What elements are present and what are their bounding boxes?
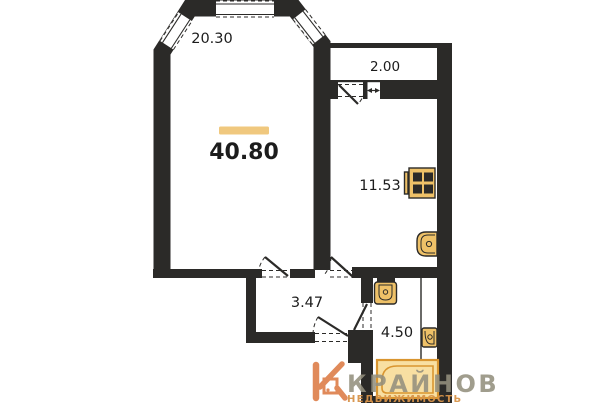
bath-sink-icon bbox=[422, 328, 437, 347]
balcony-floor-line bbox=[330, 80, 437, 82]
entrance-door-swing-icon bbox=[313, 317, 348, 342]
brand-logo: КРАЙНОВ НЕДВИЖИМОСТЬ bbox=[316, 364, 499, 403]
window-icon bbox=[216, 1, 274, 18]
living-room-area-label: 20.30 bbox=[191, 31, 233, 47]
bathroom-area-label: 4.50 bbox=[381, 325, 413, 341]
hallway-area-label: 3.47 bbox=[291, 295, 323, 311]
toilet-icon bbox=[375, 270, 397, 304]
total-area-highlight-bar bbox=[219, 127, 269, 135]
walls bbox=[153, 8, 452, 403]
living-door-swing-icon bbox=[258, 257, 290, 277]
right-outer-wall bbox=[437, 43, 452, 403]
floor-plan-canvas: 20.30 2.00 40.80 11.53 3.47 4.50 КРАЙНОВ… bbox=[0, 0, 605, 403]
balcony-top-wall bbox=[330, 43, 452, 48]
living-bottom-wall bbox=[153, 269, 256, 278]
brand-k-icon bbox=[316, 364, 345, 398]
stove-icon bbox=[405, 168, 436, 198]
hallway-bottom-wall bbox=[246, 332, 315, 343]
balcony-door-swing-icon bbox=[338, 85, 365, 105]
floor-plan: 20.30 2.00 40.80 11.53 3.47 4.50 КРАЙНОВ… bbox=[0, 0, 605, 403]
dimension-arrow-icon bbox=[363, 83, 380, 98]
brand-subtitle: НЕДВИЖИМОСТЬ bbox=[347, 394, 462, 403]
balcony-area-label: 2.00 bbox=[370, 59, 400, 75]
fixtures bbox=[375, 168, 439, 398]
kitchen-area-label: 11.53 bbox=[359, 178, 401, 194]
kitchen-sink-icon bbox=[417, 232, 437, 256]
bathroom-door-swing-icon bbox=[354, 303, 371, 331]
total-area-label: 40.80 bbox=[209, 140, 279, 165]
